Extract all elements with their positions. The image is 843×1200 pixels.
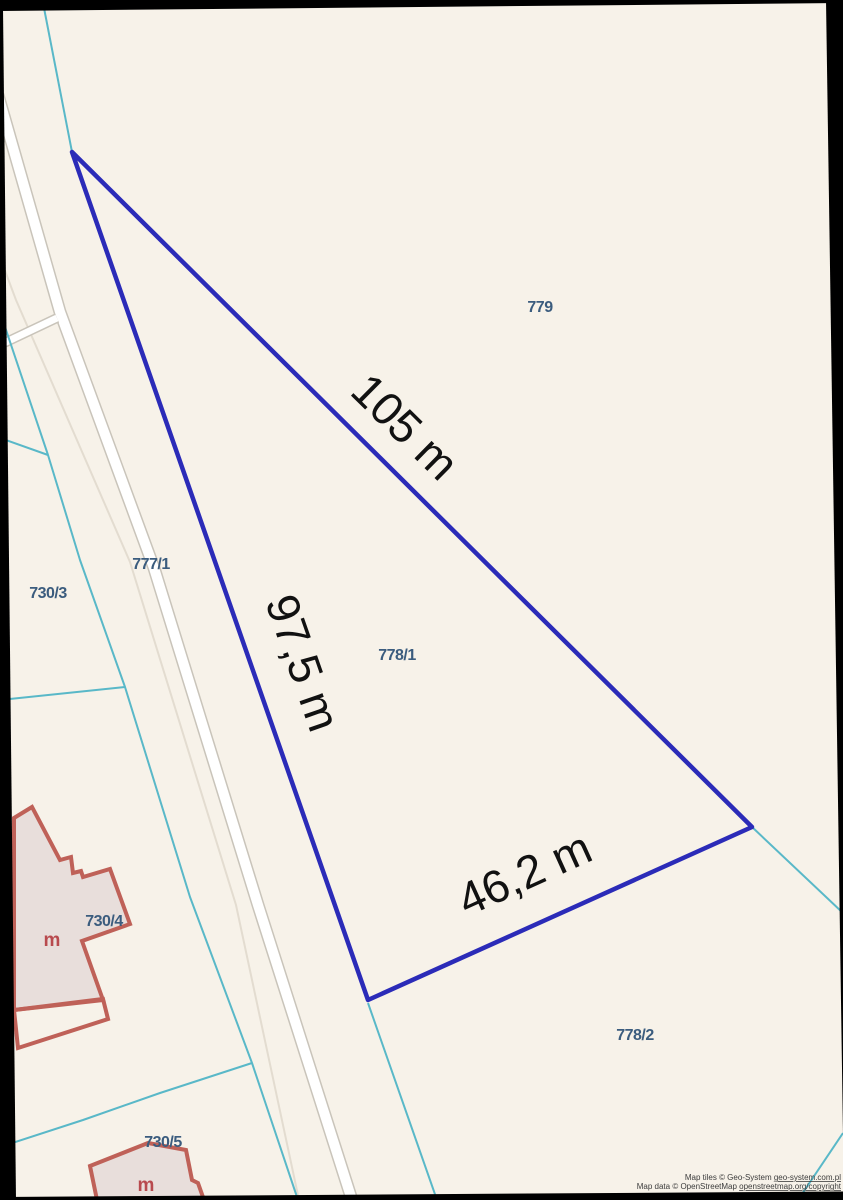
attribution-data-link[interactable]: openstreetmap.org/copyright [739,1182,842,1191]
map-background [0,0,843,1200]
parcel-label-777-1: 777/1 [132,556,170,573]
map-viewport[interactable]: m m 105 m 97,5 m 46,2 m 779 777/1 730/3 … [0,0,843,1200]
parcel-label-778-1: 778/1 [378,647,416,664]
parcel-label-730-5: 730/5 [144,1134,182,1151]
parcel-label-730-4: 730/4 [85,913,123,930]
attribution-data-text: Map data © OpenStreetMap [637,1182,739,1191]
parcel-label-730-3: 730/3 [29,585,67,602]
building-label-730-4: m [44,930,61,951]
attribution-data: Map data © OpenStreetMap openstreetmap.o… [637,1182,842,1191]
building-label-730-5: m [138,1175,155,1196]
attribution-tiles-text: Map tiles © Geo-System [685,1173,774,1182]
parcel-label-778-2: 778/2 [616,1027,654,1044]
parcel-label-779: 779 [527,299,553,316]
attribution-tiles: Map tiles © Geo-System geo-system.com.pl [685,1173,841,1182]
attribution-tiles-link[interactable]: geo-system.com.pl [774,1173,841,1182]
cadastral-map-canvas[interactable]: m m 105 m 97,5 m 46,2 m 779 777/1 730/3 … [0,0,843,1200]
